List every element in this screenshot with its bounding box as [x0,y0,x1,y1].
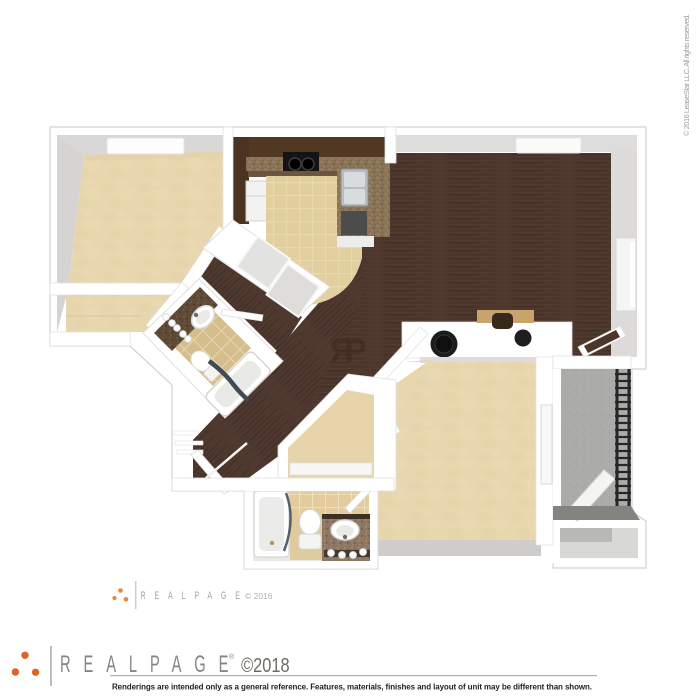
svg-text:P: P [344,332,367,370]
svg-text:© 2016 LeaseStar LLC. All righ: © 2016 LeaseStar LLC. All rights reserve… [682,14,691,136]
svg-text:Renderings are intended only a: Renderings are intended only as a genera… [112,683,592,692]
svg-text:REALPAGE: REALPAGE [141,590,249,602]
svg-text:REALPAGE: REALPAGE [60,651,241,678]
svg-text:© 2016: © 2016 [245,591,273,601]
svg-text:®: ® [229,653,235,661]
svg-text:©2018: ©2018 [241,653,290,676]
